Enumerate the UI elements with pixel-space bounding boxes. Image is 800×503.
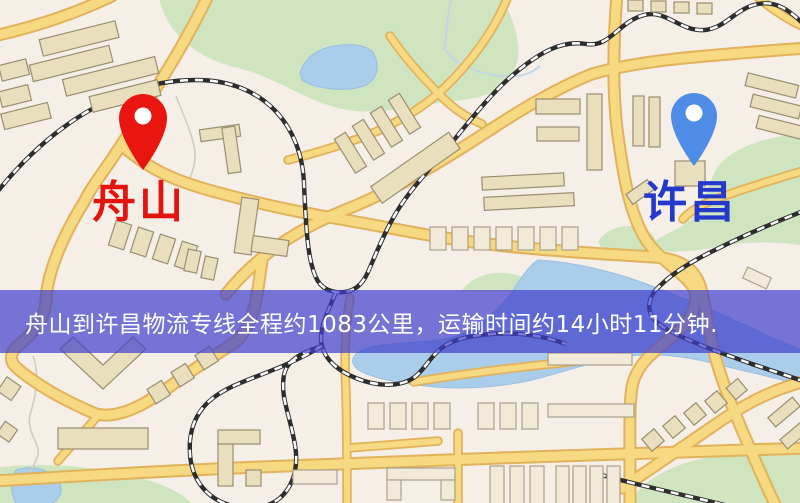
route-info-banner: 舟山到许昌物流专线全程约1083公里，运输时间约14小时11分钟. (0, 290, 800, 353)
origin-pin-hole (135, 108, 152, 125)
map-canvas[interactable]: 舟山 许昌 (0, 0, 800, 503)
map-screen: 舟山 许昌 舟山到许昌物流专线全程约1083公里，运输时间约14小时11分钟. (0, 0, 800, 503)
origin-label: 舟山 (92, 177, 186, 228)
destination-pin-hole (686, 105, 703, 122)
destination-label: 许昌 (643, 177, 737, 228)
route-info-text: 舟山到许昌物流专线全程约1083公里，运输时间约14小时11分钟. (25, 305, 718, 339)
